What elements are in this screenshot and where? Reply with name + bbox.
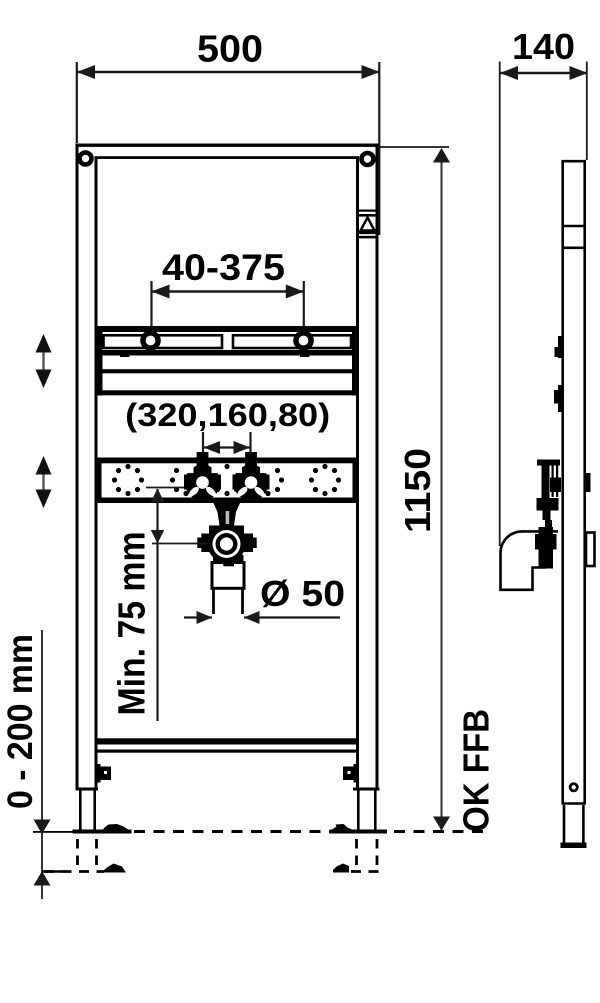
svg-text:Min. 75 mm: Min. 75 mm [111,532,153,716]
svg-text:500: 500 [197,29,263,71]
svg-text:140: 140 [512,26,575,67]
svg-text:40-375: 40-375 [162,247,285,288]
svg-text:Ø 50: Ø 50 [260,573,345,614]
svg-text:(320,160,80): (320,160,80) [125,397,330,433]
svg-text:OK FFB: OK FFB [456,709,497,832]
svg-text:0 - 200 mm: 0 - 200 mm [1,634,40,809]
svg-text:1150: 1150 [397,448,438,533]
